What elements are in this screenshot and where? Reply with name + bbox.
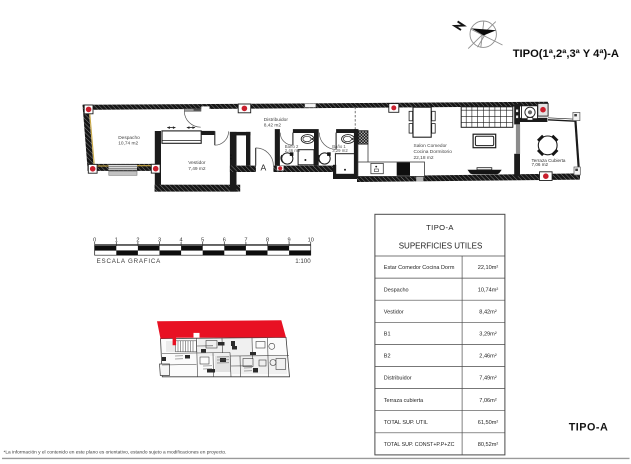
svg-text:Vestidor: Vestidor: [188, 160, 206, 166]
svg-text:TOTAL SUP. UTIL: TOTAL SUP. UTIL: [384, 420, 428, 426]
svg-text:Terraza cubierta: Terraza cubierta: [384, 398, 424, 404]
svg-text:TIPO-A: TIPO-A: [569, 422, 609, 434]
svg-text:22,18 m2: 22,18 m2: [414, 155, 434, 161]
svg-text:ESCALA GRAFICA: ESCALA GRAFICA: [97, 258, 162, 265]
svg-text:3,29m²: 3,29m²: [479, 332, 497, 338]
svg-text:Despacho: Despacho: [118, 135, 140, 141]
svg-text:TIPO-A: TIPO-A: [426, 223, 454, 232]
svg-text:*La información y el contenido: *La información y el contenido en este p…: [4, 450, 227, 456]
svg-text:B2: B2: [384, 354, 391, 360]
svg-text:10,74m²: 10,74m²: [478, 287, 499, 293]
svg-text:1:100: 1:100: [295, 258, 311, 265]
svg-text:7,49 m2: 7,49 m2: [188, 166, 206, 172]
svg-text:Estar Comedor Cocina Dorm: Estar Comedor Cocina Dorm: [384, 265, 455, 271]
svg-text:B1: B1: [384, 332, 391, 338]
svg-text:10,74 m2: 10,74 m2: [118, 141, 138, 147]
svg-text:TOTAL SUP. CONST+P.P+ZC: TOTAL SUP. CONST+P.P+ZC: [384, 442, 455, 448]
svg-text:61,50m²: 61,50m²: [478, 420, 499, 426]
svg-text:Vestidor: Vestidor: [384, 309, 404, 315]
svg-text:Salon Comedor: Salon Comedor: [414, 143, 448, 149]
svg-text:2,46 m2: 2,46 m2: [285, 148, 301, 153]
svg-text:7,06m²: 7,06m²: [479, 398, 497, 404]
svg-text:Distribuidor: Distribuidor: [264, 117, 289, 123]
svg-text:8,42 m2: 8,42 m2: [264, 122, 282, 128]
svg-text:Despacho: Despacho: [384, 287, 409, 293]
svg-text:Cocina Dormitorio: Cocina Dormitorio: [414, 149, 453, 155]
svg-text:A: A: [261, 163, 267, 173]
svg-text:22,10m²: 22,10m²: [478, 265, 499, 271]
svg-text:80,52m²: 80,52m²: [478, 442, 499, 448]
svg-text:TIPO(1ª,2ª,3ª Y 4ª)-A: TIPO(1ª,2ª,3ª Y 4ª)-A: [513, 48, 619, 60]
svg-text:SUPERFICIES UTILES: SUPERFICIES UTILES: [399, 242, 483, 251]
svg-text:7,06 m2: 7,06 m2: [532, 162, 549, 167]
svg-text:7,49m²: 7,49m²: [479, 376, 497, 382]
svg-text:2,46m²: 2,46m²: [479, 354, 497, 360]
svg-text:3,29 m2: 3,29 m2: [332, 148, 348, 153]
svg-text:Distribuidor: Distribuidor: [384, 376, 412, 382]
svg-text:8,42m²: 8,42m²: [479, 309, 497, 315]
